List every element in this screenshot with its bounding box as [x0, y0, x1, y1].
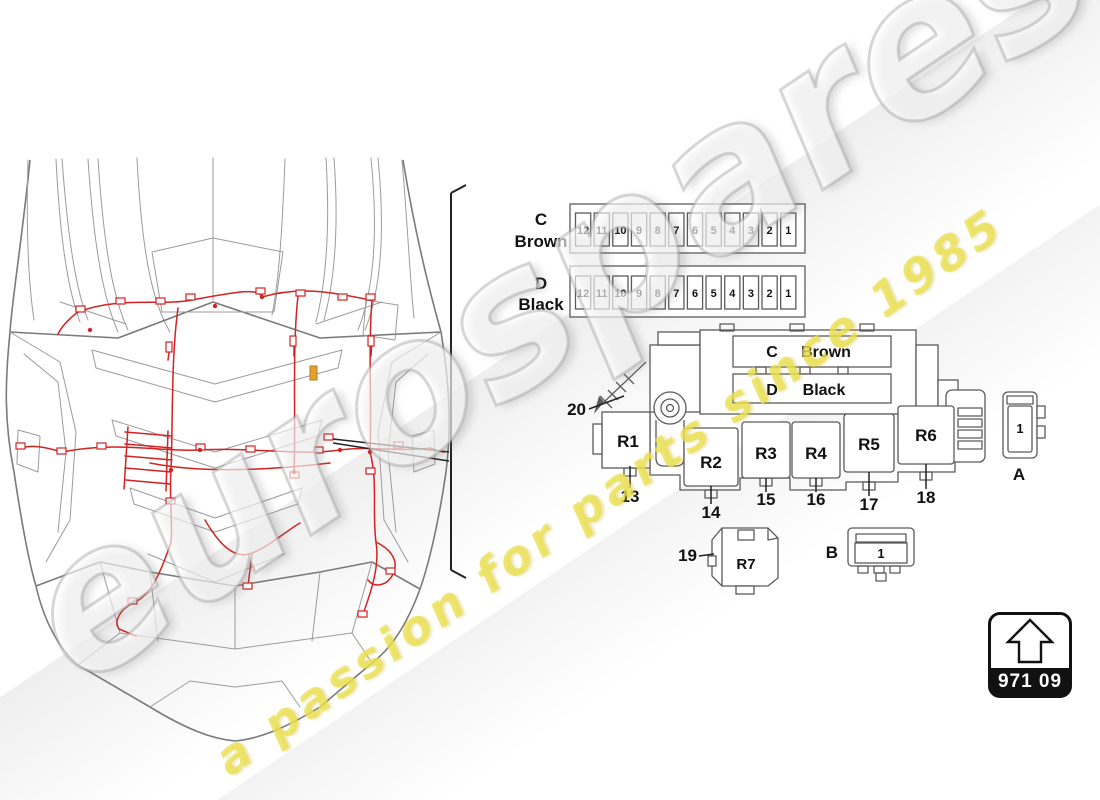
relay-label-r1: R1 — [617, 432, 639, 451]
relay-label-r3: R3 — [755, 444, 777, 463]
relay-r7-drawing: R7 19 — [678, 528, 778, 594]
fuse-number: 10 — [614, 225, 626, 237]
parts-diagram-page: C Brown 121110987654321 D Black 12111098… — [0, 0, 1100, 800]
connector-b-label: B — [826, 543, 838, 562]
callout-13[interactable]: 13 — [621, 487, 640, 506]
fuse-row-d: D Black 121110987654321 — [518, 266, 805, 317]
callout-20[interactable]: 20 — [567, 400, 586, 419]
location-bracket — [451, 185, 466, 578]
fuse-number: 4 — [729, 225, 736, 237]
fuse-number: 12 — [577, 225, 589, 237]
fuse-number: 6 — [692, 225, 698, 237]
fuse-number: 7 — [673, 288, 679, 300]
fuse-number: 6 — [692, 288, 698, 300]
fuse-number: 8 — [655, 225, 661, 237]
grommet-mount — [654, 392, 686, 466]
fuse-number: 10 — [614, 288, 626, 300]
part-number-text: 971 09 — [991, 668, 1069, 695]
fuse-row-d-color: Black — [518, 295, 564, 314]
wiring-diagram-svg: C Brown 121110987654321 D Black 12111098… — [0, 0, 1100, 800]
relay-label-r7: R7 — [736, 556, 755, 573]
amber-connector — [310, 366, 317, 380]
fuse-row-c-color: Brown — [515, 232, 568, 251]
fuse-number: 11 — [596, 288, 608, 300]
fuse-number: 3 — [748, 225, 754, 237]
connector-b-drawing: 1 B — [826, 528, 914, 581]
fuse-number: 7 — [673, 225, 679, 237]
callout-16[interactable]: 16 — [807, 490, 826, 509]
fuse-number: 1 — [785, 225, 791, 237]
fuse-row-c: C Brown 121110987654321 — [515, 204, 805, 253]
fusebox-assembly-drawing: C Brown D Black R1 R2 R3 R4 R5 R6 13 14 … — [567, 324, 985, 522]
mounting-bolt — [594, 362, 646, 414]
connector-b-pin: 1 — [877, 546, 884, 561]
connector-a-drawing: 1 A — [1003, 392, 1045, 484]
fuse-number: 9 — [636, 225, 642, 237]
fuse-number: 12 — [577, 288, 589, 300]
fuse-number: 8 — [655, 288, 661, 300]
part-number-badge: 971 09 — [988, 612, 1072, 698]
assembly-strip-d-letter: D — [766, 382, 778, 399]
callout-15[interactable]: 15 — [757, 490, 776, 509]
assembly-strip-c-letter: C — [766, 344, 778, 361]
fuse-number: 11 — [596, 225, 608, 237]
fuse-number: 2 — [767, 288, 773, 300]
fuse-row-d-letter: D — [535, 274, 547, 293]
fuse-row-c-letter: C — [535, 210, 547, 229]
relay-label-r2: R2 — [700, 453, 722, 472]
callout-18[interactable]: 18 — [917, 488, 936, 507]
fuse-number: 5 — [711, 225, 717, 237]
relay-label-r4: R4 — [805, 444, 827, 463]
callout-17[interactable]: 17 — [860, 495, 879, 514]
fuse-number: 1 — [785, 288, 791, 300]
callout-14[interactable]: 14 — [702, 503, 721, 522]
fuse-number: 5 — [711, 288, 717, 300]
connector-a-pin: 1 — [1016, 421, 1023, 436]
assembly-strip-d-label: Black — [803, 382, 846, 399]
relay-label-r6: R6 — [915, 426, 937, 445]
relay-label-r5: R5 — [858, 435, 880, 454]
assembly-strip-c-label: Brown — [801, 344, 851, 361]
fuse-number: 3 — [748, 288, 754, 300]
fuse-number: 2 — [767, 225, 773, 237]
connector-a-label: A — [1013, 465, 1025, 484]
callout-19[interactable]: 19 — [678, 546, 697, 565]
callout-pointer — [333, 439, 449, 461]
fuse-number: 4 — [729, 288, 736, 300]
up-arrow-icon — [991, 615, 1069, 671]
fuse-number: 9 — [636, 288, 642, 300]
